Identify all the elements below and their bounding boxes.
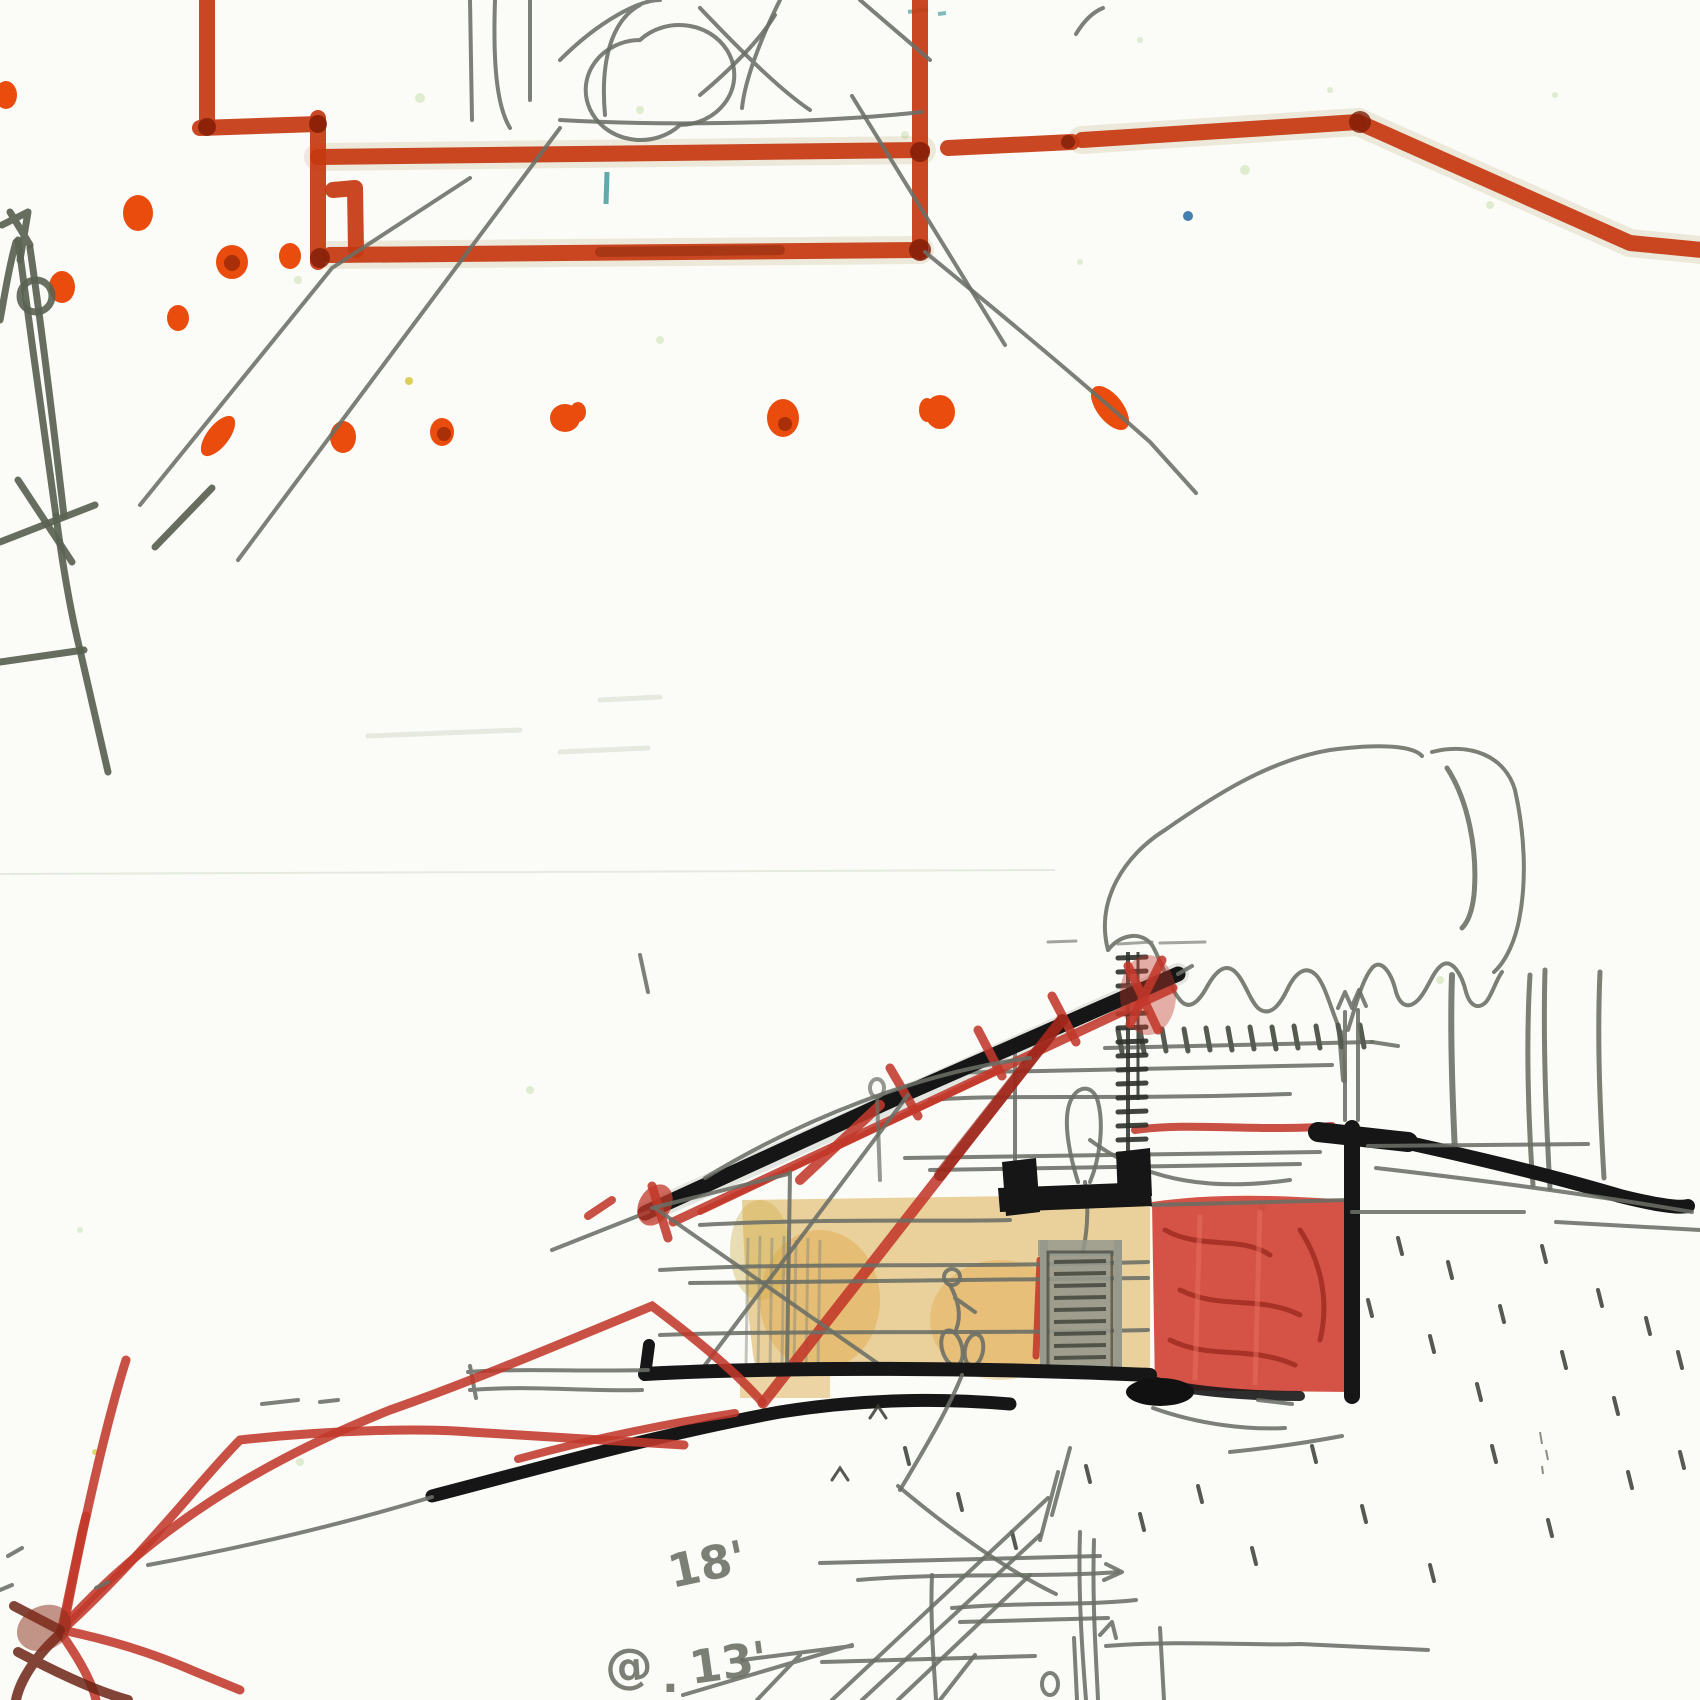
roof-black-line: [645, 974, 1178, 1213]
section-sketch: 18' @ . 13': [0, 746, 1700, 1700]
faint-smudges: [368, 697, 660, 752]
plan-notch: [333, 188, 356, 250]
scanned-sketch-page: 18' @ . 13': [0, 0, 1700, 1700]
detail-sketch-bottom-right: [820, 1375, 1548, 1700]
floor-slab-line: [645, 1369, 1150, 1375]
faint-arcs: [1153, 1400, 1342, 1452]
tree-trunk: [1528, 970, 1550, 1188]
scan-seam: [0, 870, 1055, 874]
red-grade-to-eave: [62, 1306, 762, 1628]
yellow-speck: [405, 377, 413, 385]
at-period: .: [662, 1652, 679, 1700]
footing-blob: [1126, 1378, 1194, 1406]
dark-overlap: [600, 250, 780, 252]
tree-trunk: [1451, 975, 1455, 1152]
site-sketch-left: [0, 212, 212, 772]
dimension-label-18ft: 18': [663, 1530, 751, 1599]
canopy-scallop-right: [1348, 963, 1502, 1030]
clerestory-post-right: [1345, 1010, 1358, 1120]
grade-pencil-tail: [148, 1497, 432, 1565]
sketch-svg: 18' @ . 13': [0, 0, 1700, 1700]
right-ground-line: [1395, 1140, 1688, 1207]
plan-wall-lines: [198, 0, 1700, 268]
horizon-dashes: [1048, 941, 1205, 944]
at-marker: @: [603, 1637, 655, 1696]
arrowhead-2: [1100, 1622, 1116, 1638]
plan-sketch: [0, 0, 1700, 560]
red-retaining-wall-fill: [1152, 1196, 1350, 1392]
tree-trunk: [1599, 972, 1604, 1178]
red-sill-line: [1135, 1126, 1332, 1130]
teal-mark: [606, 172, 607, 204]
edge-squiggles: [1540, 1432, 1548, 1474]
plan-column-dots: [0, 81, 1136, 462]
ridge-red-blotch: [1120, 955, 1176, 1035]
blue-dot: [1183, 211, 1193, 221]
dimension-label-13ft: 13': [686, 1631, 771, 1695]
dimension-annotations: 18' @ . 13': [603, 1530, 852, 1700]
